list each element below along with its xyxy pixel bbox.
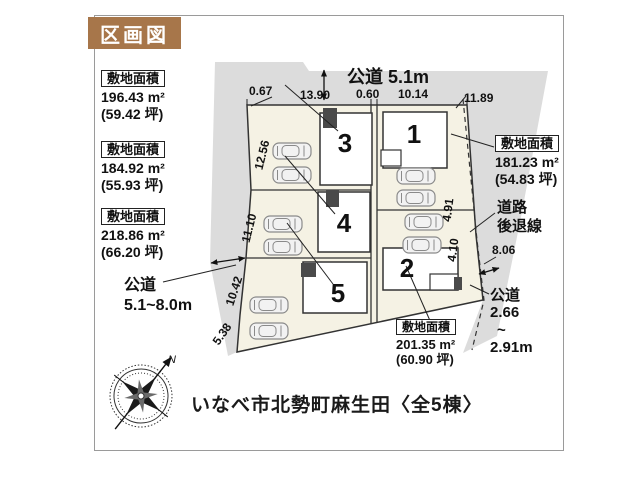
page-title: 区画図 xyxy=(88,17,181,49)
road-right-line3: ~ xyxy=(497,322,533,339)
road-right-line4: 2.91m xyxy=(490,339,533,356)
porch-4-icon xyxy=(326,190,339,207)
site-area-tsubo: (54.83 坪) xyxy=(495,171,559,188)
site-area-tsubo: (60.90 坪) xyxy=(396,352,456,367)
car-icon xyxy=(273,143,311,159)
setback-label: 道路 後退線 xyxy=(497,199,542,237)
dim-top-0-67: 0.67 xyxy=(249,84,272,98)
site-area-label-lot1: 敷地面積 181.23 m² (54.83 坪) xyxy=(495,135,559,187)
road-left-line1: 公道 xyxy=(124,276,192,296)
site-area-label-lot4: 敷地面積 184.92 m² (55.93 坪) xyxy=(101,141,165,193)
site-area-m2: 181.23 m² xyxy=(495,154,559,171)
car-icon xyxy=(397,190,435,206)
car-icon xyxy=(250,323,288,339)
dim-right-8-06: 8.06 xyxy=(492,243,515,257)
road-right-line1: 公道 xyxy=(490,287,533,304)
road-label-left: 公道 5.1~8.0m xyxy=(124,276,192,316)
car-icon xyxy=(264,216,302,232)
car-icon xyxy=(264,239,302,255)
site-area-tsubo: (55.93 坪) xyxy=(101,177,165,194)
road-label-right: 公道 2.66 ~ 2.91m xyxy=(490,287,533,356)
site-area-heading: 敷地面積 xyxy=(101,141,165,158)
setback-line1: 道路 xyxy=(497,199,542,218)
dim-right-4-91: 4.91 xyxy=(440,197,457,222)
site-area-m2: 218.86 m² xyxy=(101,227,165,244)
lot-5-number: 5 xyxy=(331,278,345,308)
car-icon xyxy=(405,214,443,230)
site-area-label-lot3: 敷地面積 196.43 m² (59.42 坪) xyxy=(101,70,165,122)
lot-3-number: 3 xyxy=(338,128,352,158)
porch-3-icon xyxy=(323,108,337,128)
site-area-heading: 敷地面積 xyxy=(495,135,559,152)
site-area-m2: 196.43 m² xyxy=(101,89,165,106)
car-icon xyxy=(250,297,288,313)
road-label-top: 公道 5.1m xyxy=(347,63,429,89)
road-right-line2: 2.66 xyxy=(490,304,533,321)
car-icon xyxy=(273,167,311,183)
porch-2-icon xyxy=(454,277,462,290)
site-area-label-lot2: 敷地面積 201.35 m² (60.90 坪) xyxy=(396,319,456,368)
compass-north-label: N xyxy=(168,354,176,366)
setback-line2: 後退線 xyxy=(497,218,542,237)
building-1-step xyxy=(381,150,401,166)
dim-top-11-89: 11.89 xyxy=(464,91,493,105)
lot-1-number: 1 xyxy=(407,119,421,149)
compass-rose-icon: N xyxy=(88,336,198,450)
dim-right-4-10: 4.10 xyxy=(445,237,462,262)
site-area-label-lot5: 敷地面積 218.86 m² (66.20 坪) xyxy=(101,208,165,260)
dim-top-0-60: 0.60 xyxy=(356,87,379,101)
dim-top-10-14: 10.14 xyxy=(398,87,428,101)
site-area-m2: 184.92 m² xyxy=(101,160,165,177)
lot-4-number: 4 xyxy=(337,208,352,238)
road-left-line2: 5.1~8.0m xyxy=(124,296,192,316)
car-icon xyxy=(397,168,435,184)
building-2-step xyxy=(430,274,458,290)
site-area-heading: 敷地面積 xyxy=(101,70,165,87)
car-icon xyxy=(403,237,441,253)
site-area-m2: 201.35 m² xyxy=(396,337,456,352)
lot-2-number: 2 xyxy=(400,253,414,283)
site-area-tsubo: (66.20 坪) xyxy=(101,244,165,261)
porch-5-icon xyxy=(301,263,316,277)
property-address: いなべ市北勢町麻生田〈全5棟〉 xyxy=(191,390,483,417)
dim-top-13-90: 13.90 xyxy=(300,88,330,102)
site-area-heading: 敷地面積 xyxy=(101,208,165,225)
site-area-tsubo: (59.42 坪) xyxy=(101,106,165,123)
site-area-heading: 敷地面積 xyxy=(396,319,456,335)
